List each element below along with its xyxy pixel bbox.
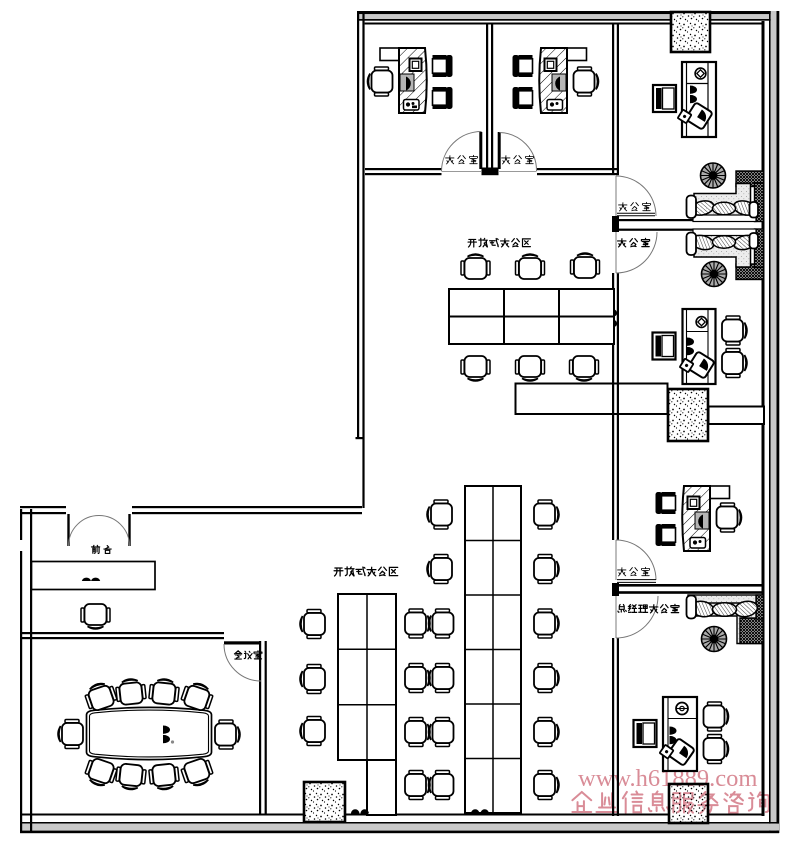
svg-text:www.h61889.com: www.h61889.com — [578, 765, 757, 792]
